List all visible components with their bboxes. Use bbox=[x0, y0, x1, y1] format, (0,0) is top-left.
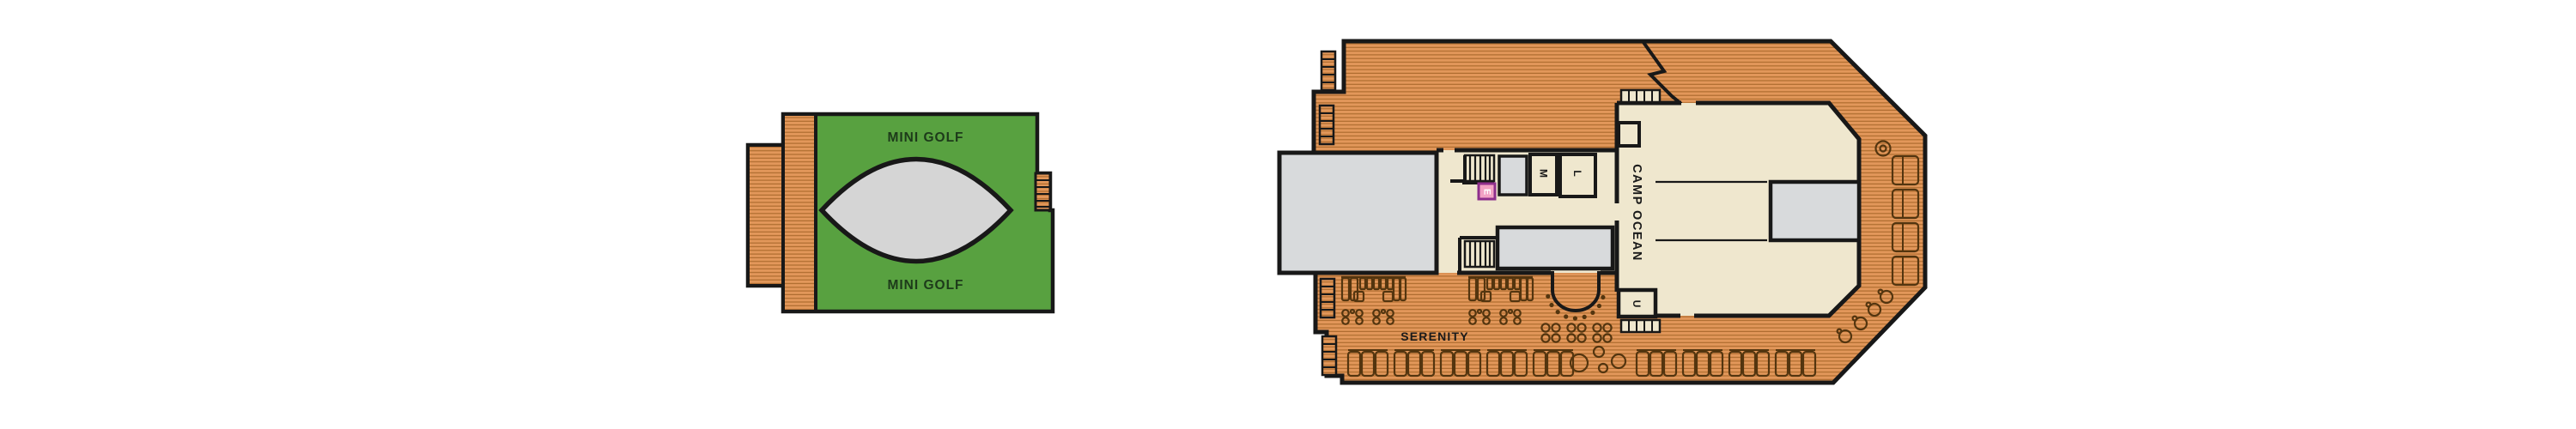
aft-room bbox=[1279, 153, 1437, 273]
mini-golf-deck: MINI GOLF MINI GOLF bbox=[748, 114, 1053, 311]
stern-stairs-icon bbox=[1322, 336, 1336, 375]
mini-golf-label-top: MINI GOLF bbox=[887, 130, 963, 145]
elevator-letter: E bbox=[1482, 189, 1492, 195]
elevator-icon: E bbox=[1479, 184, 1495, 199]
camp-ocean-small-room bbox=[1619, 123, 1639, 146]
mini-golf-wood-wing bbox=[748, 145, 785, 286]
camp-ocean-label: CAMP OCEAN bbox=[1630, 164, 1643, 262]
deck-plan-drawing: MINI GOLF MINI GOLF bbox=[0, 0, 2576, 429]
deck-plan-canvas: MINI GOLF MINI GOLF bbox=[0, 0, 2576, 429]
mid-gray-room bbox=[1498, 227, 1613, 269]
stern-stairs-icon bbox=[1321, 51, 1335, 90]
serenity-label: SERENITY bbox=[1400, 329, 1469, 343]
staircase-icon bbox=[1465, 155, 1494, 181]
stern-stairs-icon bbox=[1320, 106, 1334, 144]
mini-golf-wood-strip bbox=[783, 114, 816, 311]
stairs-icon bbox=[1621, 320, 1660, 332]
staircase-icon bbox=[1465, 241, 1494, 267]
small-room-gray bbox=[1499, 156, 1527, 195]
room-m-label: M bbox=[1538, 169, 1550, 178]
mini-golf-stairs-icon bbox=[1036, 173, 1050, 210]
stairs-icon bbox=[1621, 90, 1660, 102]
room-u-label: U bbox=[1631, 300, 1643, 308]
stern-stairs-icon bbox=[1321, 279, 1334, 317]
serenity-camp-ocean-deck: E bbox=[1279, 41, 1925, 383]
room-l-label: L bbox=[1571, 170, 1583, 176]
mini-golf-label-bottom: MINI GOLF bbox=[887, 278, 963, 293]
forward-room bbox=[1771, 182, 1859, 240]
